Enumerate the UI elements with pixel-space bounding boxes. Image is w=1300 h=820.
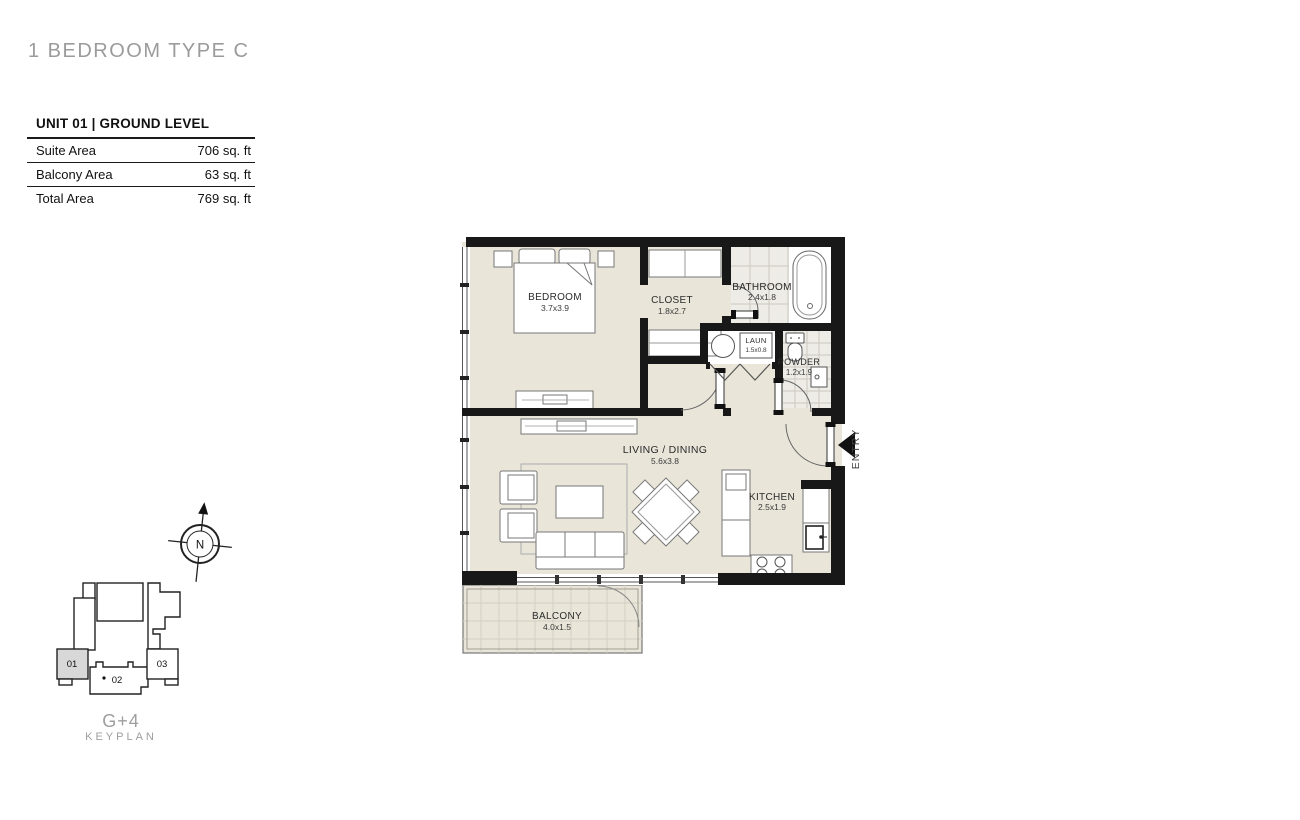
balcony-window <box>517 574 718 585</box>
nightstand <box>598 251 614 267</box>
room-label-balcony: BALCONY <box>532 611 582 622</box>
kitchen-sink <box>803 523 829 552</box>
keyplan-caption: KEYPLAN <box>51 731 191 743</box>
room-dim-kitchen: 2.5x1.9 <box>758 502 786 512</box>
keyplan-unit-03-label: 03 <box>157 659 168 670</box>
floor-plan-svg: ENTRY BEDROOM 3.7x3.9 CLOSET 1.8x2.7 BAT… <box>0 0 1300 820</box>
room-dim-powder: 1.2x1.9 <box>786 368 813 377</box>
entry-label: ENTRY <box>850 429 862 469</box>
fridge <box>722 470 750 520</box>
north-arrow <box>198 502 209 515</box>
keyplan-unit-02-label: 02 <box>112 675 123 686</box>
armchair <box>500 509 537 542</box>
keyplan-building-label: G+4 <box>51 711 191 732</box>
room-dim-balcony: 4.0x1.5 <box>543 622 571 632</box>
room-dim-bedroom: 3.7x3.9 <box>541 303 569 313</box>
sofa <box>536 532 624 569</box>
compass-icon: N <box>164 499 236 585</box>
room-label-living: LIVING / DINING <box>623 444 707 456</box>
room-label-powder: POWDER <box>778 357 821 367</box>
tv-console <box>521 419 637 434</box>
kitchen-cabinet <box>722 520 750 556</box>
room-dim-closet: 1.8x2.7 <box>658 306 686 316</box>
kitchen-counter <box>803 486 829 523</box>
keyplan: 01 02 03 <box>57 583 180 694</box>
bathtub <box>789 247 831 323</box>
nightstand <box>494 251 512 267</box>
room-dim-living: 5.6x3.8 <box>651 456 679 466</box>
room-label-laundry: LAUN <box>745 336 766 345</box>
coffee-table <box>556 486 603 518</box>
powder-sink <box>811 367 827 387</box>
keyplan-unit-01-label: 01 <box>67 659 78 670</box>
pillow <box>559 249 590 264</box>
room-dim-laundry: 1.5x0.8 <box>745 347 767 354</box>
washer <box>712 335 735 358</box>
armchair <box>500 471 537 504</box>
room-label-bedroom: BEDROOM <box>528 292 582 303</box>
bedroom-dresser <box>516 391 593 409</box>
room-dim-bathroom: 2.4x1.8 <box>748 292 776 302</box>
room-label-closet: CLOSET <box>651 295 693 306</box>
pillow <box>519 249 555 264</box>
dining-set <box>632 478 700 546</box>
compass-label: N <box>196 540 204 552</box>
